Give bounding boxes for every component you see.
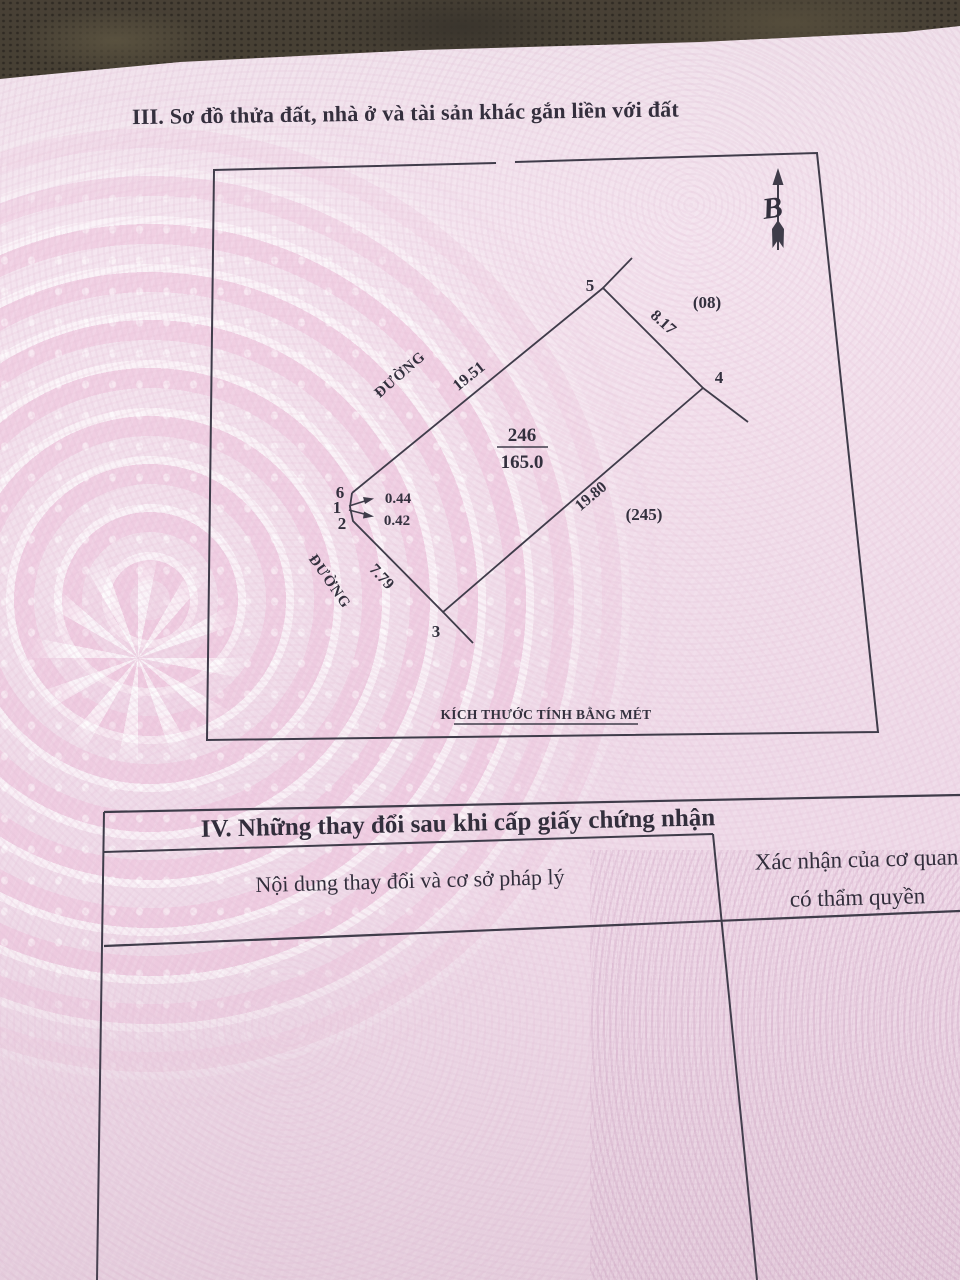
extension-past-5 (603, 258, 632, 288)
edge-0-44: 0.44 (385, 491, 412, 507)
vertex-5: 5 (586, 276, 595, 295)
edge-0-42: 0.42 (384, 513, 410, 529)
edge-8-17: 8.17 (647, 307, 679, 338)
road-label-lower: ĐƯỜNG (305, 551, 354, 611)
vertex-4: 4 (715, 368, 724, 387)
parcel-area: 165.0 (501, 452, 544, 473)
right-header-line2: có thẩm quyền (732, 876, 960, 921)
parcel-number: 246 (508, 425, 537, 446)
adjacent-plot-08: (08) (693, 293, 721, 312)
extension-past-4 (703, 388, 748, 422)
north-arrow-icon: B (759, 168, 784, 250)
road-label-upper: ĐƯỜNG (371, 348, 429, 401)
small-edge-arrows (349, 497, 374, 519)
edge-19-51: 19.51 (450, 359, 489, 395)
plot-diagram: B 5 4 3 6 1 2 19.51 8.17 19.80 7.79 0.44… (100, 140, 920, 760)
north-label: B (759, 190, 784, 226)
edge-7-79: 7.79 (366, 561, 398, 593)
vertex-3: 3 (432, 622, 441, 641)
adjacent-plot-245: (245) (626, 505, 663, 524)
parcel-boundary (350, 288, 703, 612)
section4-right-column-header: Xác nhận của cơ quan có thẩm quyền (731, 838, 960, 921)
parcel-id-area: 246 165.0 (497, 425, 548, 473)
certificate-photo: III. Sơ đồ thửa đất, nhà ở và tài sản kh… (0, 0, 960, 1280)
vertex-2: 2 (338, 514, 347, 533)
extension-past-3 (443, 612, 473, 643)
diagram-caption: KÍCH THƯỚC TÍNH BẰNG MÉT (441, 707, 652, 722)
right-header-line1: Xác nhận của cơ quan (731, 838, 960, 883)
